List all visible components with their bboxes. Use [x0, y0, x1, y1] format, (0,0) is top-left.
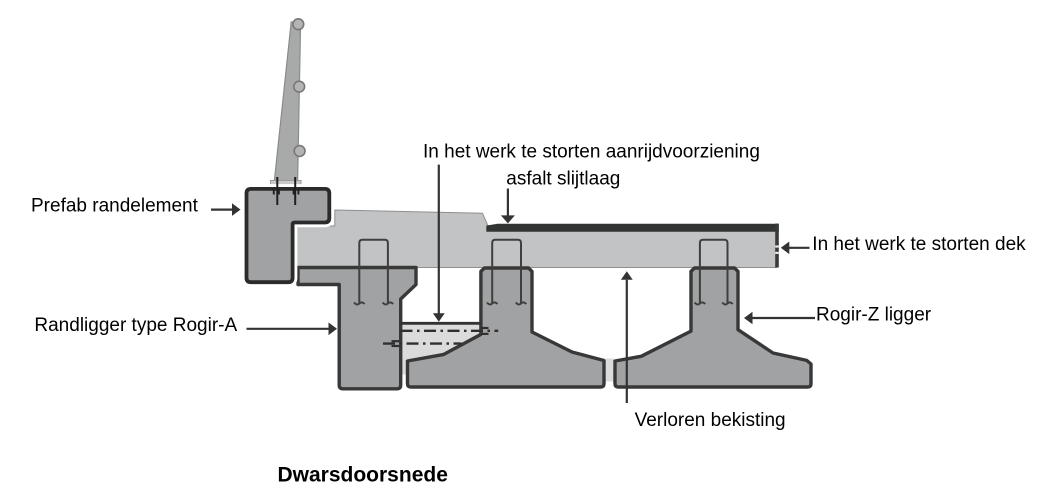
svg-text:Dwarsdoorsnede: Dwarsdoorsnede — [278, 463, 448, 486]
svg-text:Prefab randelement: Prefab randelement — [31, 196, 199, 217]
svg-text:Verloren bekisting: Verloren bekisting — [635, 410, 786, 431]
svg-text:In het werk te storten aanrijd: In het werk te storten aanrijdvoorzienin… — [423, 142, 760, 163]
svg-text:In het werk te storten dek: In het werk te storten dek — [812, 234, 1026, 255]
svg-text:Randligger type Rogir-A: Randligger type Rogir-A — [34, 315, 237, 336]
svg-text:Rogir-Z ligger: Rogir-Z ligger — [816, 305, 932, 326]
svg-text:asfalt slijtlaag: asfalt slijtlaag — [506, 169, 620, 190]
